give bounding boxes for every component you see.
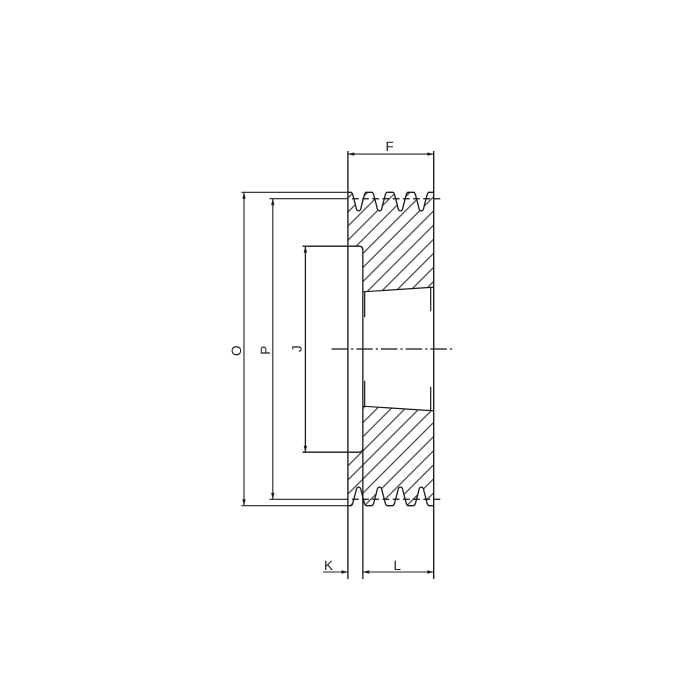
- svg-text:O: O: [229, 345, 244, 356]
- svg-text:L: L: [394, 558, 402, 573]
- svg-text:P: P: [258, 346, 273, 355]
- svg-text:J: J: [289, 345, 304, 352]
- svg-text:K: K: [324, 558, 333, 573]
- svg-text:F: F: [385, 139, 393, 154]
